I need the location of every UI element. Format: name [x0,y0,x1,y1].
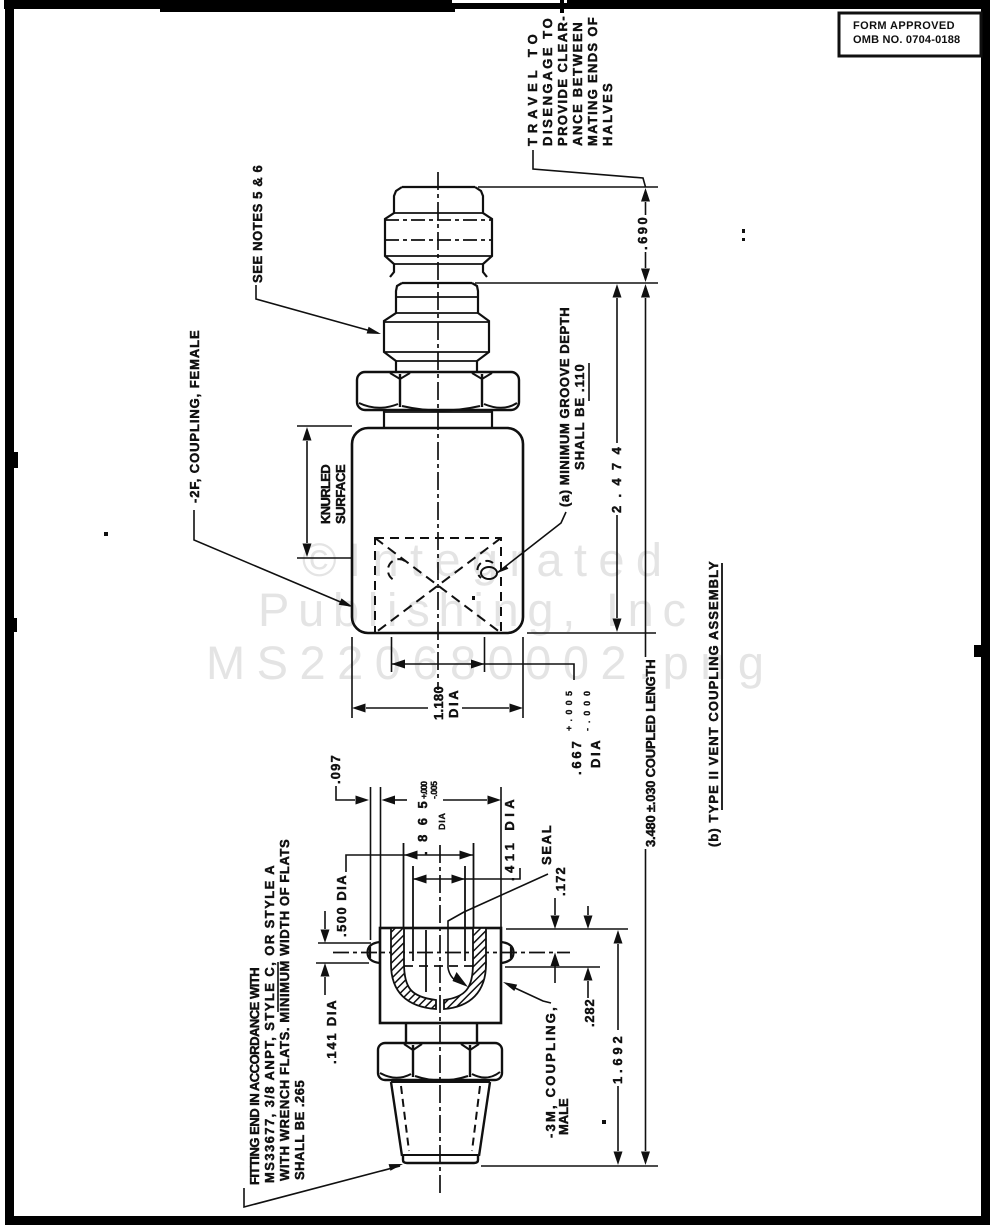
svg-text:SHALL BE .265: SHALL BE .265 [292,1080,307,1180]
svg-text:HALVES: HALVES [600,83,615,146]
svg-text:ANCE BETWEEN: ANCE BETWEEN [570,22,585,146]
svg-text:MATING ENDS OF: MATING ENDS OF [585,17,600,146]
svg-text:DIA: DIA [437,813,447,831]
svg-text:.141 DIA: .141 DIA [324,1000,339,1064]
svg-text:1.692: 1.692 [610,1036,625,1084]
svg-text:-.005: -.005 [429,781,439,799]
svg-text:WITH WRENCH FLATS. MINIMUM WID: WITH WRENCH FLATS. MINIMUM WIDTH OF FLAT… [277,839,292,1181]
svg-text:.097: .097 [328,755,343,784]
svg-text:+.005: +.005 [564,691,574,731]
svg-text:MS33677, 3/8 ANPT, STYLE C, OR: MS33677, 3/8 ANPT, STYLE C, OR STYLE A [262,865,277,1183]
svg-text:DISENGAGE TO: DISENGAGE TO [540,18,555,146]
svg-text:+.000: +.000 [419,781,429,799]
svg-text:.411 DIA: .411 DIA [502,799,517,881]
svg-text:FORM APPROVED: FORM APPROVED [853,20,955,32]
svg-text:.667: .667 [569,741,584,775]
svg-text:Publishing, Inc: Publishing, Inc [258,583,688,636]
svg-text:MS220680002.png: MS220680002.png [206,636,766,689]
svg-text:2.474: 2.474 [609,447,624,513]
svg-text:FITTING END IN ACCORDANCE WITH: FITTING END IN ACCORDANCE WITH [247,967,262,1185]
svg-text:.500 DIA: .500 DIA [334,875,349,937]
svg-text:.172: .172 [553,867,568,896]
svg-text:-2F, COUPLING, FEMALE: -2F, COUPLING, FEMALE [187,330,202,503]
svg-text:OMB NO. 0704-0188: OMB NO. 0704-0188 [853,34,960,46]
svg-text:(b) TYPE II VENT COUPLING ASSE: (b) TYPE II VENT COUPLING ASSEMBLY [706,561,721,847]
svg-text:SEAL: SEAL [539,825,554,865]
svg-text:SEE NOTES 5 & 6: SEE NOTES 5 & 6 [250,165,265,283]
svg-text:-.000: -.000 [582,691,592,731]
svg-text:PROVIDE CLEAR-: PROVIDE CLEAR- [555,16,570,146]
svg-text:.865: .865 [415,801,430,855]
svg-text:.282: .282 [582,999,597,1027]
svg-text:.690: .690 [635,217,650,250]
svg-text:DIA: DIA [446,690,461,718]
svg-text:TRAVEL TO: TRAVEL TO [525,34,540,146]
svg-text:3.480 ±.030 COUPLED LENGTH: 3.480 ±.030 COUPLED LENGTH [643,659,658,847]
svg-text:SURFACE: SURFACE [333,464,348,524]
svg-text:DIA: DIA [588,740,603,768]
svg-text:(a) MINIMUM GROOVE DEPTH: (a) MINIMUM GROOVE DEPTH [557,307,572,507]
svg-text:KNURLED: KNURLED [318,464,333,524]
svg-text:MALE: MALE [556,1098,571,1135]
svg-text:1.180: 1.180 [431,686,446,720]
svg-text:SHALL BE .110: SHALL BE .110 [572,364,587,470]
